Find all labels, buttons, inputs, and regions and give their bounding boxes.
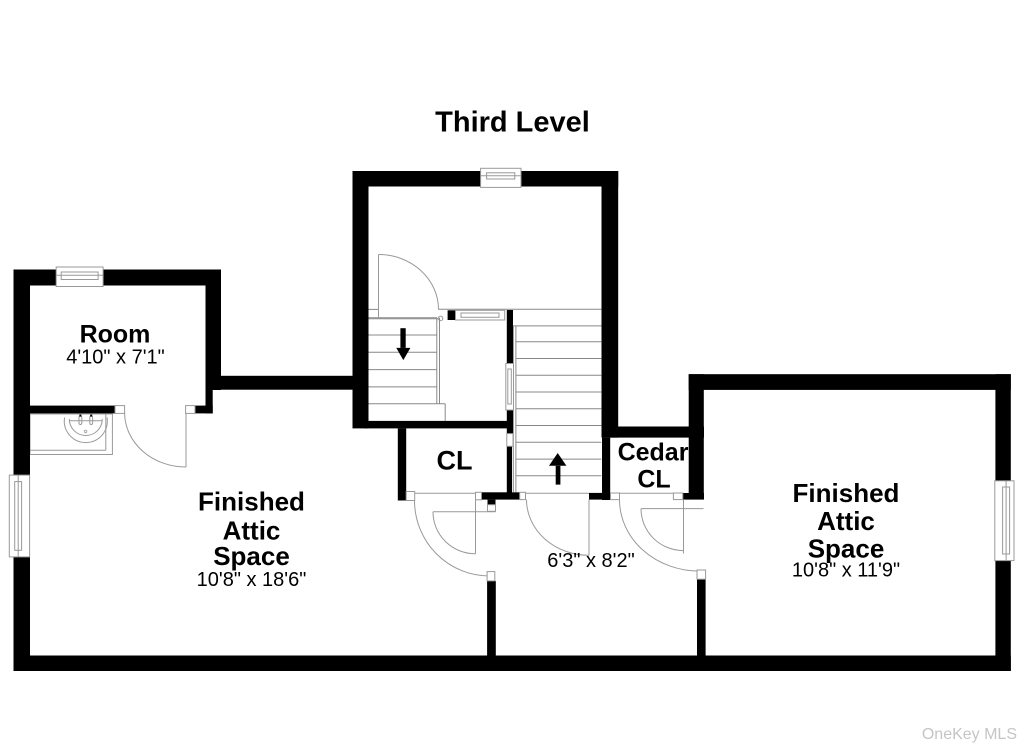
svg-text:10'8" x 11'9": 10'8" x 11'9" bbox=[792, 560, 900, 582]
svg-text:Attic: Attic bbox=[817, 506, 875, 536]
svg-text:OneKey MLS: OneKey MLS bbox=[922, 726, 1017, 743]
svg-text:Space: Space bbox=[213, 541, 290, 571]
svg-text:Finished: Finished bbox=[198, 487, 305, 517]
svg-text:Cedar: Cedar bbox=[618, 439, 689, 467]
svg-text:10'8" x 18'6": 10'8" x 18'6" bbox=[197, 569, 307, 591]
svg-text:Finished: Finished bbox=[793, 478, 900, 508]
svg-text:Third Level: Third Level bbox=[435, 107, 590, 139]
svg-text:Room: Room bbox=[80, 320, 151, 348]
svg-text:CL: CL bbox=[637, 465, 670, 493]
svg-text:CL: CL bbox=[437, 445, 473, 475]
svg-text:6'3" x 8'2": 6'3" x 8'2" bbox=[547, 550, 634, 572]
svg-text:4'10" x 7'1": 4'10" x 7'1" bbox=[66, 347, 165, 369]
